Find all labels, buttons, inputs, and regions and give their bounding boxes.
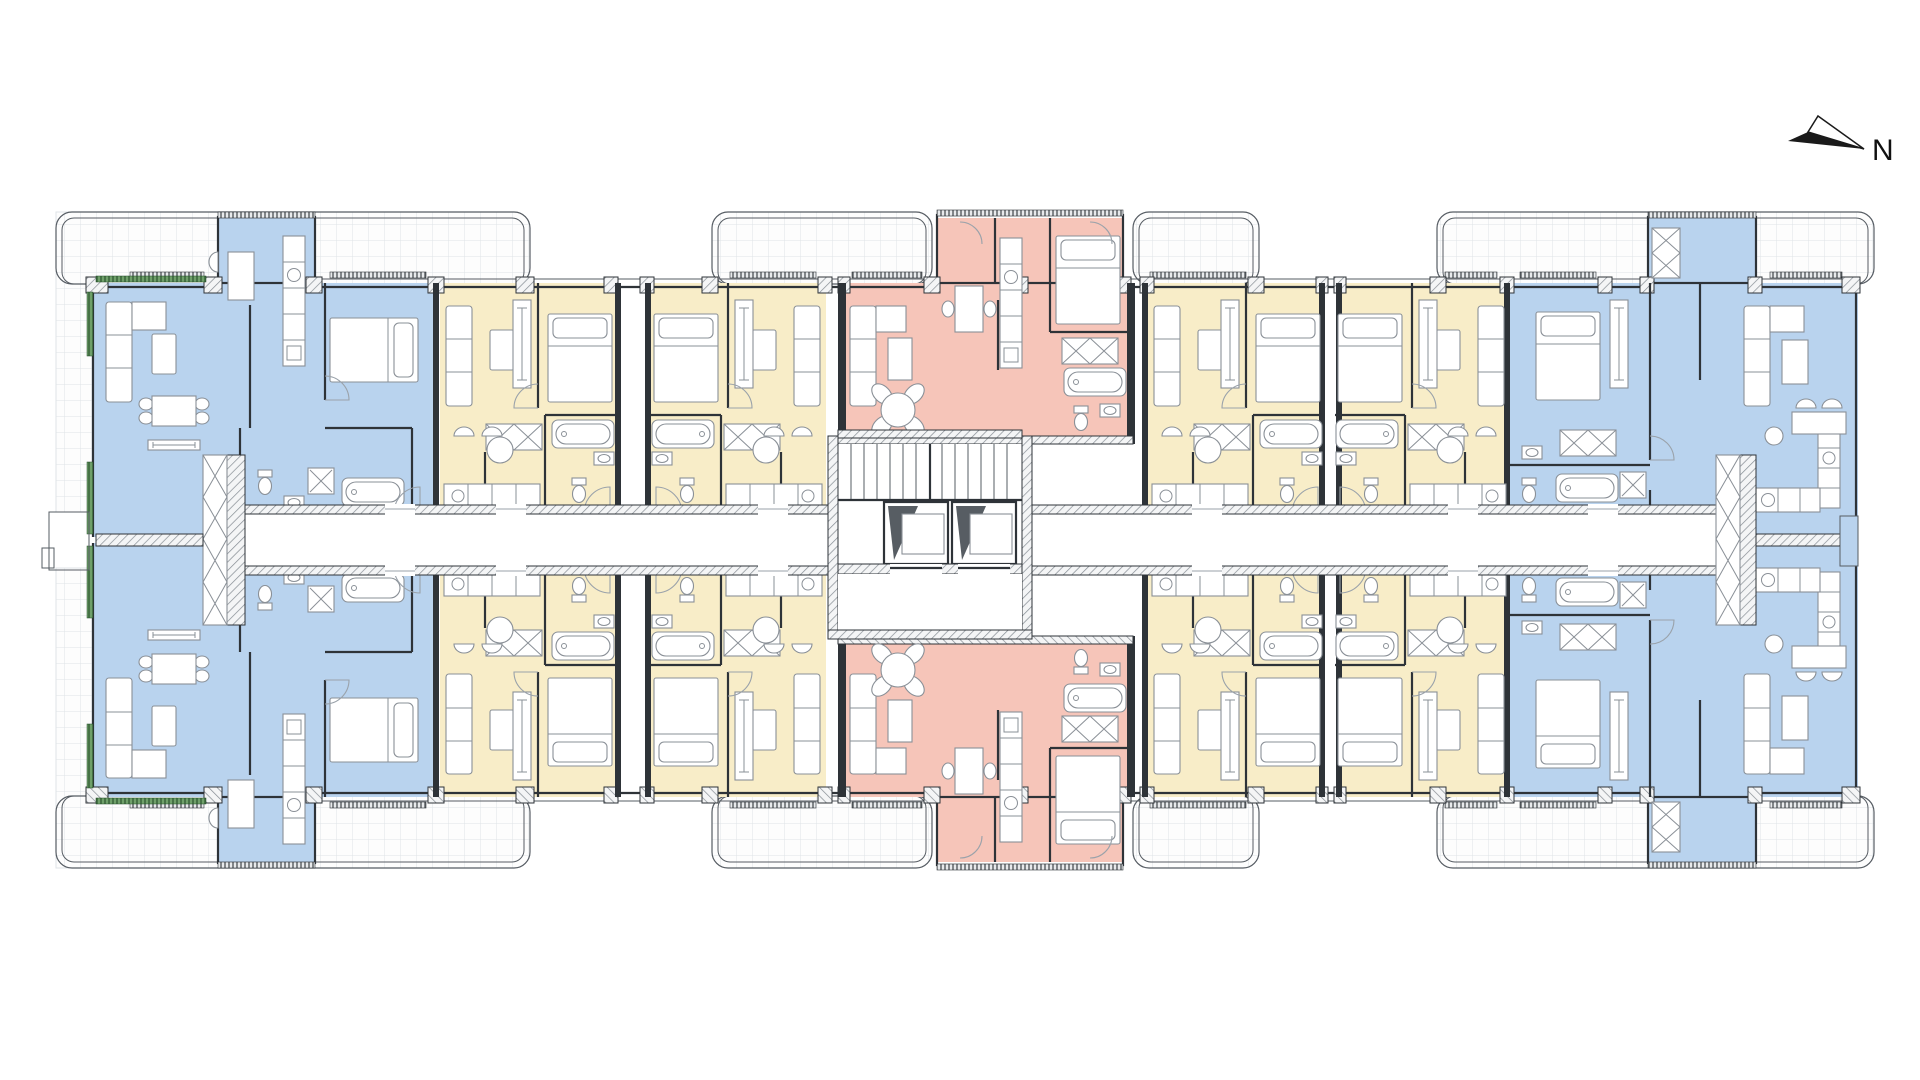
- south-pink-north-wall: [828, 630, 1032, 639]
- east-wardrobe-column: [1716, 455, 1740, 625]
- west-wardrobe-column: [203, 455, 227, 625]
- stair-elevator-core: [828, 430, 1032, 639]
- floor-plan-drawing: N: [0, 0, 1920, 1080]
- corridor-west-end-wall: [227, 455, 245, 625]
- floor-plan-canvas: N: [0, 0, 1920, 1080]
- elevator-lobby-niche: [838, 574, 1022, 630]
- north-label: N: [1872, 134, 1894, 167]
- west-party-wall: [96, 534, 203, 546]
- west-site-elements: [42, 512, 89, 570]
- core-west-wall: [828, 436, 838, 636]
- east-bay: [1840, 516, 1858, 566]
- core-north-wall: [838, 430, 1022, 438]
- north-arrow: N: [1788, 116, 1894, 167]
- corridor-east-end-wall: [1740, 455, 1756, 625]
- core-east-wall: [1022, 436, 1032, 636]
